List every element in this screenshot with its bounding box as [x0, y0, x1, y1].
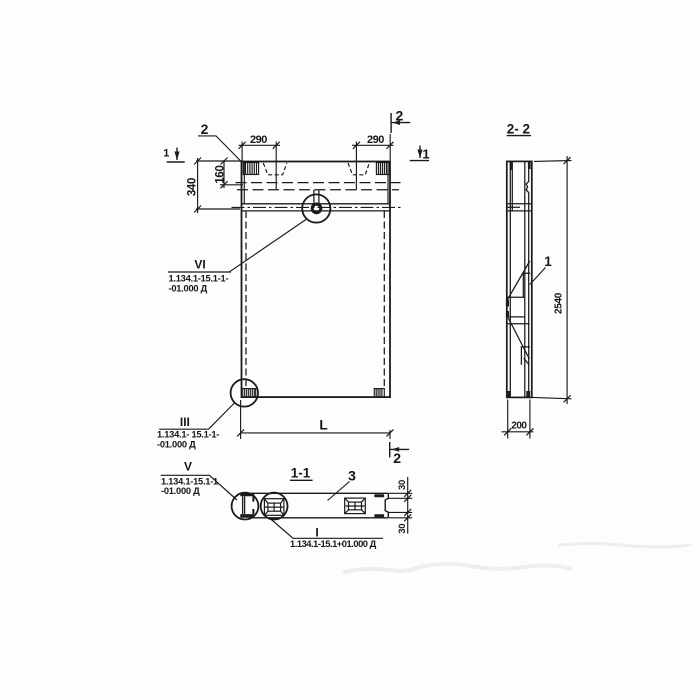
svg-text:2: 2 [393, 450, 401, 466]
svg-text:1: 1 [163, 148, 169, 160]
svg-text:2: 2 [201, 121, 209, 137]
svg-text:1-1: 1-1 [291, 466, 311, 481]
svg-text:1: 1 [544, 254, 552, 269]
svg-text:3: 3 [348, 468, 356, 484]
svg-text:340: 340 [186, 178, 198, 196]
svg-text:2540: 2540 [553, 292, 564, 314]
svg-text:30: 30 [397, 524, 408, 534]
svg-text:200: 200 [511, 420, 527, 431]
svg-text:-01.000 Д: -01.000 Д [169, 284, 208, 294]
svg-text:1: 1 [422, 147, 429, 162]
svg-text:-01.000 Д: -01.000 Д [161, 486, 200, 496]
svg-text:-01.000 Д: -01.000 Д [157, 440, 196, 450]
svg-text:III: III [180, 415, 190, 429]
svg-text:2: 2 [396, 108, 404, 124]
svg-text:I: I [315, 526, 318, 540]
svg-text:2- 2: 2- 2 [507, 121, 530, 136]
svg-text:1.134.1-15.1+01.000 Д: 1.134.1-15.1+01.000 Д [290, 539, 377, 549]
svg-text:VI: VI [194, 257, 205, 271]
svg-text:290: 290 [250, 134, 267, 146]
svg-text:L: L [319, 418, 327, 433]
svg-text:1.134.1- 15.1-1-: 1.134.1- 15.1-1- [157, 430, 219, 440]
svg-text:160: 160 [214, 165, 226, 183]
svg-text:V: V [184, 460, 192, 474]
svg-text:1.134.1-15.1-1: 1.134.1-15.1-1 [161, 477, 218, 487]
svg-text:290: 290 [367, 134, 384, 146]
svg-text:30: 30 [397, 480, 408, 490]
svg-text:1.134.1-15.1-1-: 1.134.1-15.1-1- [169, 274, 229, 284]
